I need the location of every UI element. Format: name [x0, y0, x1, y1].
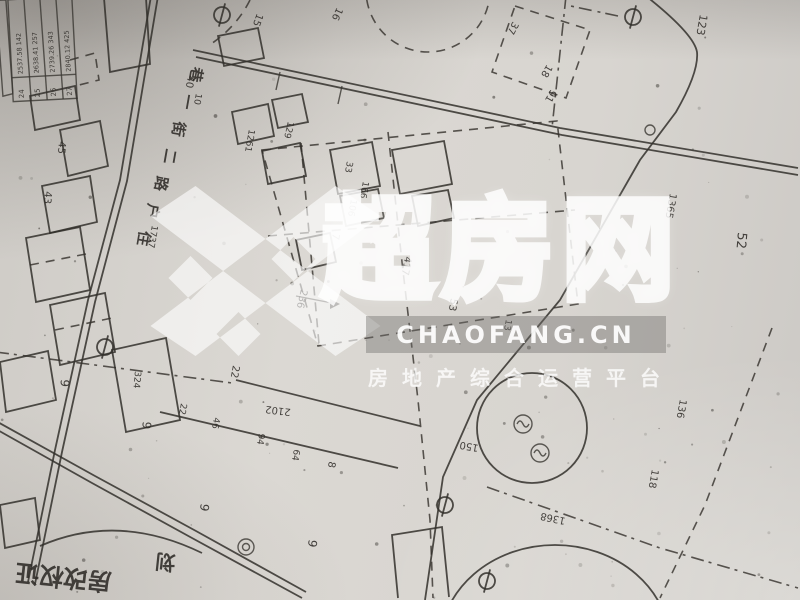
noise-dot — [657, 532, 661, 536]
map-label: 118 — [646, 468, 660, 489]
noise-dot — [269, 453, 270, 454]
noise-dot — [702, 154, 705, 157]
arrow-head — [330, 299, 340, 309]
noise-dot — [89, 195, 92, 198]
map-label: 150 — [459, 439, 480, 453]
noise-dot — [44, 335, 46, 337]
noise-dot — [698, 271, 699, 272]
noise-dot — [148, 478, 149, 479]
map-label: 46 — [209, 416, 221, 429]
map-label: 9 — [197, 502, 212, 512]
noise-dot — [463, 476, 467, 480]
tree-symbol — [531, 444, 549, 462]
noise-dot — [429, 354, 433, 358]
noise-dot — [615, 251, 616, 252]
noise-dot — [222, 242, 226, 246]
noise-dot — [1, 418, 4, 421]
noise-dot — [698, 107, 701, 110]
tree-symbol — [514, 415, 532, 433]
noise-dot — [683, 328, 685, 330]
noise-dot — [245, 184, 247, 186]
noise-dot — [375, 542, 379, 546]
noise-dot — [283, 443, 285, 445]
map-label: 22 — [176, 402, 188, 415]
noise-dot — [578, 563, 582, 567]
noise-dot — [572, 329, 575, 332]
noise-dot — [610, 575, 612, 577]
noise-dot — [129, 448, 133, 452]
map-label: 52 — [733, 232, 749, 250]
noise-dot — [275, 279, 277, 281]
map-label: 2102 — [265, 403, 292, 417]
noise-dot — [388, 339, 390, 341]
map-label: 住 — [133, 229, 153, 247]
noise-dot — [315, 330, 316, 331]
map-label: 136 — [674, 398, 688, 419]
noise-dot — [175, 128, 177, 130]
noise-dot — [503, 422, 506, 425]
noise-dot — [459, 343, 461, 345]
map-label: 91 — [542, 88, 558, 105]
survey-point-icon — [476, 567, 498, 594]
noise-dot — [611, 584, 614, 587]
noise-dot — [359, 261, 363, 265]
noise-dot — [115, 536, 118, 539]
noise-dot — [506, 230, 509, 233]
map-label: 53 — [446, 297, 459, 311]
noise-dot — [467, 428, 468, 429]
noise-dot — [200, 586, 202, 588]
noise-dot — [601, 470, 604, 473]
map-label: 33 — [342, 160, 354, 173]
noise-dot — [52, 397, 54, 399]
map-label: 房改权证 — [14, 558, 112, 596]
noise-dot — [19, 176, 23, 180]
site-plan-drawing: 2537.58 1422638.41 2572739.26 3432840.12… — [0, 0, 800, 600]
noise-dot — [340, 471, 343, 474]
noise-dot — [480, 298, 482, 300]
noise-dot — [492, 96, 495, 99]
noise-dot — [567, 462, 569, 464]
noise-dot — [741, 252, 744, 255]
noise-dot — [363, 139, 366, 142]
noise-dot — [214, 114, 218, 118]
noise-dot — [604, 346, 607, 349]
noise-dot — [692, 148, 694, 150]
map-label: 9 — [57, 379, 72, 388]
roads — [0, 0, 798, 598]
noise-dot — [464, 390, 468, 394]
noise-dot — [691, 444, 693, 446]
noise-dot — [76, 591, 78, 593]
map-label: 22 — [228, 364, 241, 378]
noise-dot — [257, 323, 258, 324]
noise-dot — [259, 436, 262, 439]
map-label: 64 — [289, 448, 301, 461]
noise-dot — [265, 443, 268, 446]
map-label: 324 — [130, 371, 141, 389]
noise-dot — [644, 433, 647, 436]
map-label: 129 — [281, 120, 295, 139]
noise-dot — [418, 361, 421, 364]
map-label: 94 — [254, 432, 266, 445]
noise-dot — [767, 531, 770, 534]
noise-dot — [82, 558, 86, 562]
noise-dot — [770, 466, 772, 468]
well-symbol — [238, 539, 254, 555]
noise-dot — [624, 265, 628, 269]
noise-dot — [760, 238, 763, 241]
noise-dot — [711, 409, 714, 412]
map-label: 15 — [250, 12, 265, 28]
map-label: 1261 — [242, 128, 256, 152]
noise-dot — [538, 412, 540, 414]
noise-dot — [745, 195, 749, 199]
noise-dot — [262, 401, 264, 403]
noise-dot — [527, 346, 531, 350]
map-label: 18 — [538, 63, 554, 80]
survey-point-icon — [622, 3, 644, 30]
map-label: 43 — [41, 191, 53, 205]
noise-dot — [74, 260, 76, 262]
noise-dot — [722, 440, 726, 444]
noise-dot — [101, 570, 104, 573]
map-label: 划 — [154, 549, 176, 575]
table-cell: 2537.58 142 — [15, 33, 25, 75]
noise-dot — [505, 564, 509, 568]
noise-dot — [38, 227, 40, 229]
map-label: 二 — [160, 147, 180, 165]
noise-dot — [541, 435, 545, 439]
noise-dot — [435, 504, 438, 507]
noise-dot — [667, 344, 671, 348]
noise-dot — [586, 457, 588, 459]
noise-dot — [731, 326, 732, 327]
boundary-lines — [160, 0, 697, 600]
table-cell: 2638.41 257 — [31, 32, 41, 74]
map-label: 1368 — [539, 510, 566, 526]
map-label: 户 — [142, 202, 162, 220]
noise-dot — [239, 400, 243, 404]
noise-dot — [613, 418, 614, 419]
map-labels: 1231365521361181516371891104045431261129… — [14, 6, 749, 596]
noise-dot — [659, 459, 661, 461]
map-label: 8 — [325, 460, 337, 468]
survey-point-icon — [211, 1, 233, 28]
noise-dot — [303, 469, 305, 471]
map-label: 1365 — [663, 192, 678, 219]
map-label: 街 — [168, 119, 189, 138]
map-label: 166 — [357, 180, 370, 199]
noise-dot — [664, 461, 666, 463]
scan-noise — [1, 37, 780, 599]
noise-dot — [708, 182, 709, 183]
noise-dot — [193, 196, 195, 198]
noise-dot — [530, 51, 533, 54]
noise-dot — [30, 177, 33, 180]
noise-dot — [677, 268, 678, 269]
map-label: 16 — [329, 6, 344, 22]
table-cell: 2840.12 425 — [63, 30, 73, 72]
photo-of-site-plan: 2537.58 1422638.41 2572739.26 3432840.12… — [0, 0, 800, 600]
noise-dot — [776, 392, 779, 395]
noise-dot — [270, 140, 273, 143]
noise-dot — [272, 77, 275, 80]
noise-dot — [566, 386, 567, 387]
noise-dot — [190, 524, 192, 526]
noise-dot — [560, 540, 563, 543]
noise-dot — [463, 286, 465, 288]
table-cell: 24 — [18, 89, 26, 99]
noise-dot — [514, 546, 516, 548]
map-label: 123 — [693, 13, 709, 36]
map-label: 106 — [345, 198, 358, 217]
noise-dot — [156, 440, 158, 442]
map-label: 37 — [504, 20, 520, 36]
parcel-lines — [0, 0, 798, 598]
noise-dot — [433, 597, 435, 599]
noise-dot — [565, 553, 567, 555]
map-label: 一 — [177, 93, 197, 111]
map-label: 9 — [305, 538, 320, 548]
map-label: 13 — [501, 318, 513, 331]
noise-dot — [544, 395, 547, 398]
noise-dot — [327, 280, 330, 283]
noise-dot — [757, 573, 760, 576]
coordinate-table: 2537.58 1422638.41 2572739.26 3432840.12… — [0, 0, 77, 102]
noise-dot — [704, 37, 706, 39]
noise-dot — [611, 561, 613, 563]
map-label: 45 — [55, 141, 67, 155]
table-cell: 2739.26 343 — [47, 31, 57, 73]
noise-dot — [365, 340, 366, 341]
noise-dot — [364, 102, 368, 106]
map-label: 417 — [399, 255, 413, 276]
noise-dot — [57, 55, 58, 56]
noise-dot — [656, 84, 660, 88]
map-label: 路 — [151, 175, 172, 194]
noise-dot — [549, 159, 551, 161]
noise-dot — [403, 505, 405, 507]
noise-dot — [141, 494, 144, 497]
noise-dot — [35, 69, 37, 71]
noise-dot — [290, 282, 294, 286]
noise-dot — [658, 428, 659, 429]
noise-dot — [622, 284, 624, 286]
